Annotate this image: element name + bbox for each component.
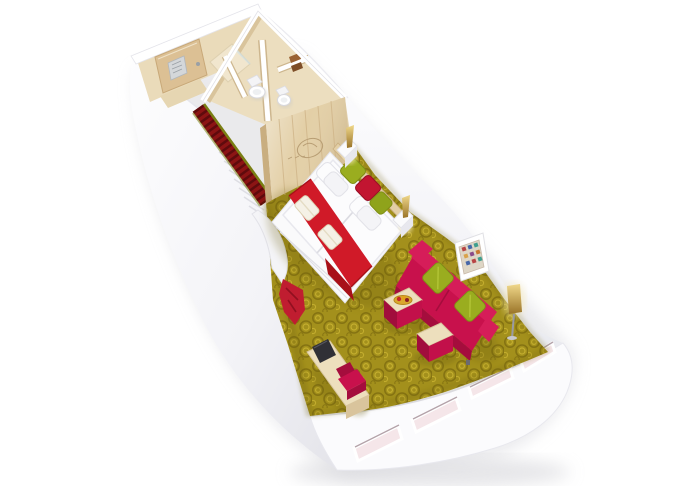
door-handle (196, 62, 200, 66)
cabin-floorplan-render (0, 0, 680, 486)
fruit-tray (394, 296, 412, 305)
lamp-shade (507, 284, 522, 314)
floorplan-svg (0, 0, 680, 486)
